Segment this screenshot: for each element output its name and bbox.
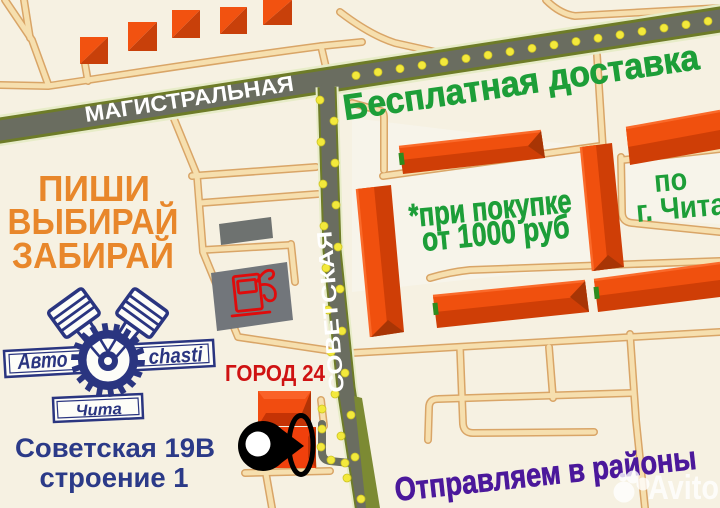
svg-text:Чита: Чита (75, 401, 122, 420)
svg-text:ГОРОД 24: ГОРОД 24 (225, 360, 325, 386)
svg-text:Советская 19В: Советская 19В (15, 433, 215, 463)
svg-text:г. Чита: г. Чита (635, 186, 720, 229)
svg-text:Avito: Avito (648, 469, 719, 507)
svg-text:строение 1: строение 1 (40, 462, 189, 493)
svg-text:Авто: Авто (16, 346, 68, 374)
svg-text:ЗАБИРАЙ: ЗАБИРАЙ (12, 234, 174, 276)
svg-text:chasti: chasti (148, 343, 204, 369)
